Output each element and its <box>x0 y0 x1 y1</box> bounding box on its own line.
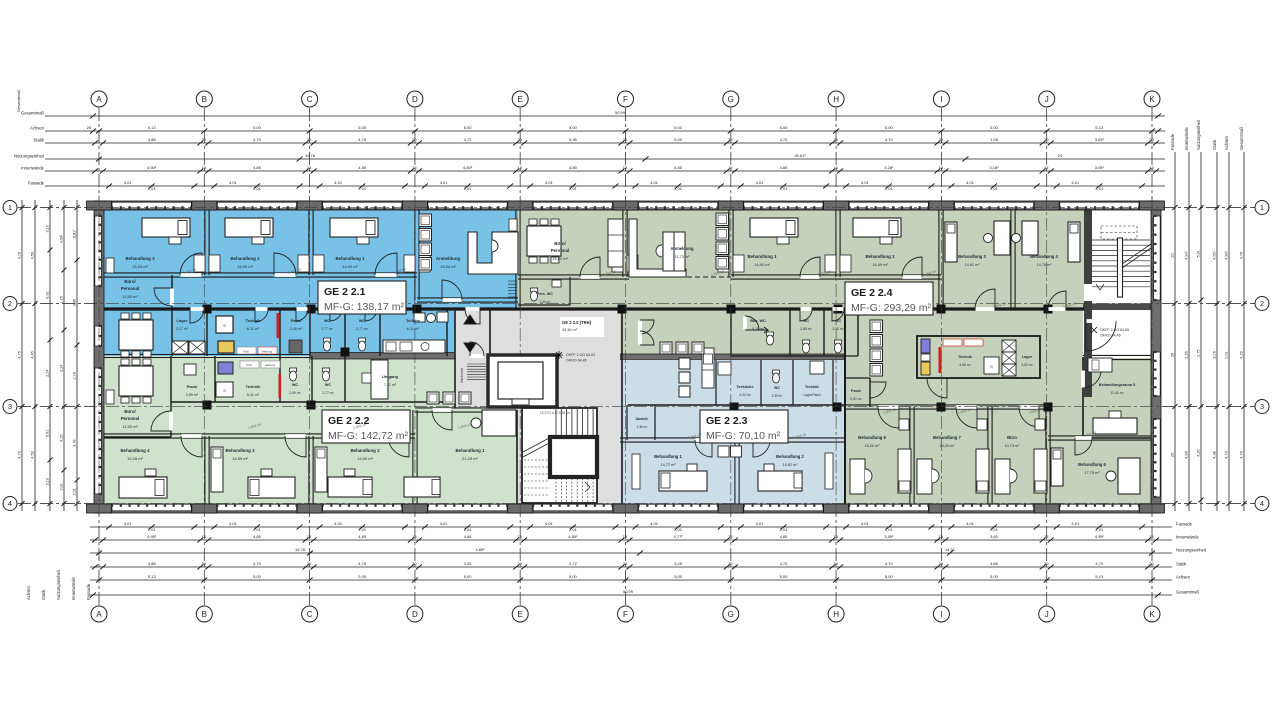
svg-text:15,28 m²: 15,28 m² <box>127 456 143 461</box>
svg-text:Anmeldung: Anmeldung <box>670 246 693 251</box>
svg-text:Behandlung 2: Behandlung 2 <box>230 256 260 261</box>
svg-text:Lager/Pausi: Lager/Pausi <box>803 393 820 397</box>
svg-text:14,82 m²: 14,82 m² <box>783 463 799 467</box>
svg-text:50,99: 50,99 <box>623 589 634 594</box>
svg-text:2,89 m²: 2,89 m² <box>186 393 199 397</box>
svg-text:2,24: 2,24 <box>60 365 64 372</box>
svg-text:20: 20 <box>1171 253 1175 257</box>
svg-text:2,01: 2,01 <box>1225 351 1229 358</box>
svg-text:3,59²: 3,59² <box>884 534 894 539</box>
svg-text:C: C <box>307 610 313 619</box>
svg-text:WC: WC <box>292 383 299 387</box>
svg-text:2,01: 2,01 <box>780 527 789 532</box>
svg-text:WC: WC <box>359 319 366 323</box>
svg-text:2,01: 2,01 <box>60 483 64 490</box>
svg-text:Garderobe: Garderobe <box>460 368 464 383</box>
svg-text:Umgang: Umgang <box>382 374 399 379</box>
svg-text:B: B <box>202 95 207 104</box>
svg-text:Gesamtmaß: Gesamtmaß <box>1239 127 1244 150</box>
svg-text:4: 4 <box>8 499 12 508</box>
svg-text:4,85: 4,85 <box>358 534 367 539</box>
svg-text:2,75: 2,75 <box>1197 350 1201 357</box>
svg-text:2,01: 2,01 <box>148 527 157 532</box>
svg-text:4,01: 4,01 <box>861 521 870 526</box>
svg-text:H: H <box>833 610 839 619</box>
svg-text:Gesamtmaß: Gesamtmaß <box>16 89 21 112</box>
svg-text:2,01: 2,01 <box>885 527 894 532</box>
svg-text:5,13: 5,13 <box>148 574 157 579</box>
svg-text:5,00: 5,00 <box>885 125 894 130</box>
svg-text:Technik/: Technik/ <box>805 385 819 389</box>
svg-text:4,68 m²: 4,68 m² <box>959 363 971 367</box>
svg-text:4,90²: 4,90² <box>147 165 157 170</box>
svg-text:4,01: 4,01 <box>229 180 238 185</box>
svg-text:5,00: 5,00 <box>253 125 262 130</box>
svg-text:OKFF 2.OG 64,65: OKFF 2.OG 64,65 <box>1100 328 1129 332</box>
svg-text:14,99 m²: 14,99 m² <box>872 262 888 267</box>
svg-text:4,95²: 4,95² <box>147 534 157 539</box>
svg-text:Büro/: Büro/ <box>124 409 136 414</box>
svg-text:GE 2 2.0 (TRH): GE 2 2.0 (TRH) <box>562 320 592 325</box>
svg-text:4,89²: 4,89² <box>475 547 485 552</box>
svg-text:18 STG a 17,5/28 cm: 18 STG a 17,5/28 cm <box>540 411 571 415</box>
svg-text:Technik: Technik <box>246 318 262 323</box>
svg-text:3: 3 <box>8 402 12 411</box>
svg-text:K: K <box>1149 610 1155 619</box>
svg-text:2,01: 2,01 <box>253 527 262 532</box>
svg-text:Fassade: Fassade <box>86 583 91 600</box>
svg-text:4,01: 4,01 <box>124 180 133 185</box>
svg-text:4,94¹: 4,94¹ <box>1185 250 1189 259</box>
svg-text:G: G <box>728 610 734 619</box>
svg-text:Nutzungseinheit: Nutzungseinheit <box>56 569 61 600</box>
svg-text:S: S <box>223 323 226 328</box>
svg-text:WC: WC <box>835 319 842 323</box>
svg-text:5,00: 5,00 <box>674 574 683 579</box>
svg-text:Behandlung 3: Behandlung 3 <box>958 254 986 259</box>
svg-text:Heizung: Heizung <box>262 350 273 354</box>
svg-text:4,75: 4,75 <box>18 351 22 358</box>
svg-text:I: I <box>940 610 942 619</box>
svg-text:WC: WC <box>803 319 810 323</box>
svg-text:Kühl: Kühl <box>243 350 249 354</box>
svg-text:14,72 m²: 14,72 m² <box>661 463 677 467</box>
svg-text:33,46 m²: 33,46 m² <box>562 328 578 332</box>
svg-text:15,28 m²: 15,28 m² <box>132 264 148 269</box>
svg-text:14,90 m²: 14,90 m² <box>342 264 358 269</box>
svg-text:4,70: 4,70 <box>358 561 367 566</box>
svg-text:14,90 m²: 14,90 m² <box>754 262 770 267</box>
svg-text:6,31 m²: 6,31 m² <box>247 327 260 331</box>
svg-text:4,70: 4,70 <box>780 561 789 566</box>
svg-text:3,05²: 3,05² <box>1095 165 1105 170</box>
svg-text:4,01: 4,01 <box>334 521 343 526</box>
svg-text:5,13: 5,13 <box>1095 574 1104 579</box>
svg-text:2,01: 2,01 <box>780 186 789 191</box>
svg-text:26: 26 <box>1171 353 1175 357</box>
svg-text:19,78: 19,78 <box>295 547 306 552</box>
svg-text:4,02 m²: 4,02 m² <box>739 393 751 397</box>
svg-text:Behandlung 4: Behandlung 4 <box>1030 254 1058 259</box>
svg-text:2,01: 2,01 <box>148 186 157 191</box>
svg-text:14,91: 14,91 <box>945 547 956 552</box>
svg-text:D: D <box>412 95 418 104</box>
svg-text:4,85: 4,85 <box>358 165 367 170</box>
svg-text:Statik: Statik <box>41 589 46 600</box>
svg-text:2,85 m²: 2,85 m² <box>800 327 812 331</box>
svg-text:2,01: 2,01 <box>674 527 683 532</box>
svg-text:3: 3 <box>1260 402 1264 411</box>
svg-text:B: B <box>202 610 207 619</box>
svg-text:4,01: 4,01 <box>966 180 975 185</box>
svg-text:4,70: 4,70 <box>885 137 894 142</box>
svg-text:Behandlung 4: Behandlung 4 <box>120 448 150 453</box>
svg-text:2,51 m²: 2,51 m² <box>850 397 862 401</box>
svg-text:Behandlung 6: Behandlung 6 <box>1078 462 1106 467</box>
svg-text:Fassade: Fassade <box>1176 522 1193 527</box>
svg-text:4,85: 4,85 <box>253 534 262 539</box>
svg-text:4,70: 4,70 <box>253 561 262 566</box>
svg-text:2,01: 2,01 <box>464 186 473 191</box>
svg-text:Büro/: Büro/ <box>124 279 136 284</box>
svg-text:4,29: 4,29 <box>1240 351 1244 358</box>
svg-text:14,76 m²: 14,76 m² <box>1037 263 1053 267</box>
svg-text:3,17 m²: 3,17 m² <box>176 327 189 331</box>
svg-text:5,00: 5,00 <box>358 125 367 130</box>
svg-text:4,85: 4,85 <box>780 534 789 539</box>
svg-text:4,85: 4,85 <box>674 165 683 170</box>
svg-text:5,13: 5,13 <box>1095 125 1104 130</box>
svg-text:J: J <box>1045 610 1049 619</box>
svg-text:Behandlung 1: Behandlung 1 <box>335 256 365 261</box>
svg-text:5,00: 5,00 <box>569 574 578 579</box>
svg-text:4,01: 4,01 <box>756 180 765 185</box>
svg-text:4,70: 4,70 <box>885 561 894 566</box>
svg-text:4,59: 4,59 <box>31 451 35 458</box>
svg-text:3,25: 3,25 <box>674 561 683 566</box>
svg-text:6,91: 6,91 <box>46 430 50 437</box>
svg-text:4,01: 4,01 <box>334 180 343 185</box>
svg-text:5,00: 5,00 <box>569 125 578 130</box>
svg-text:2,30 m²: 2,30 m² <box>540 300 551 304</box>
svg-text:3,66: 3,66 <box>73 299 77 306</box>
svg-text:5,00: 5,00 <box>885 574 894 579</box>
svg-text:4,15: 4,15 <box>60 435 64 442</box>
svg-text:4,95: 4,95 <box>1185 451 1189 458</box>
svg-text:5,61¹: 5,61¹ <box>73 229 77 238</box>
svg-text:A: A <box>96 610 102 619</box>
svg-text:1,36 m²: 1,36 m² <box>637 425 648 429</box>
svg-text:4,26: 4,26 <box>1197 450 1201 457</box>
svg-text:Behandlung 1: Behandlung 1 <box>747 254 777 259</box>
svg-text:3,10 m²: 3,10 m² <box>832 327 844 331</box>
svg-text:4,80²: 4,80² <box>463 165 473 170</box>
svg-text:Behandlung 8: Behandlung 8 <box>858 435 886 440</box>
svg-text:4,88: 4,88 <box>990 561 999 566</box>
svg-text:2,76: 2,76 <box>73 372 77 379</box>
svg-text:4,79: 4,79 <box>1240 451 1244 458</box>
svg-text:5,00: 5,00 <box>674 125 683 130</box>
svg-text:14,99 m²: 14,99 m² <box>357 456 373 461</box>
svg-text:GE 2 2.1: GE 2 2.1 <box>324 286 366 298</box>
svg-text:I: I <box>940 95 942 104</box>
svg-text:WC: WC <box>325 383 332 387</box>
svg-text:24: 24 <box>1058 153 1063 158</box>
svg-text:26,61²: 26,61² <box>794 153 806 158</box>
svg-text:4,70: 4,70 <box>358 137 367 142</box>
svg-text:4,01: 4,01 <box>650 180 659 185</box>
svg-text:Nutzungseinheit: Nutzungseinheit <box>14 154 45 159</box>
svg-text:Pausi: Pausi <box>187 384 198 389</box>
svg-text:5,15 m²: 5,15 m² <box>752 327 764 331</box>
svg-text:4,95²: 4,95² <box>1095 534 1105 539</box>
svg-text:5,00: 5,00 <box>253 574 262 579</box>
svg-text:17,75 m²: 17,75 m² <box>1085 471 1101 475</box>
svg-text:Kühl: Kühl <box>246 363 252 367</box>
svg-text:Behandlung 7: Behandlung 7 <box>933 435 961 440</box>
svg-text:6,31 m²: 6,31 m² <box>407 327 420 331</box>
svg-text:4,59: 4,59 <box>31 252 35 259</box>
svg-text:11,55 m²: 11,55 m² <box>122 424 138 429</box>
svg-text:4,70: 4,70 <box>780 137 789 142</box>
svg-text:11,41 m²: 11,41 m² <box>1110 391 1124 395</box>
svg-text:F: F <box>623 95 628 104</box>
svg-text:2,72: 2,72 <box>569 561 578 566</box>
svg-text:Personal: Personal <box>121 286 140 291</box>
svg-text:MF-G: 293,29 m²: MF-G: 293,29 m² <box>851 302 931 314</box>
svg-text:5,00: 5,00 <box>674 137 683 142</box>
svg-text:2: 2 <box>8 299 12 308</box>
svg-text:3,10: 3,10 <box>46 225 50 232</box>
svg-text:4,88: 4,88 <box>148 561 157 566</box>
svg-text:4,01: 4,01 <box>966 521 975 526</box>
svg-text:5,13: 5,13 <box>148 125 157 130</box>
svg-text:19,78: 19,78 <box>305 153 316 158</box>
svg-text:4,79: 4,79 <box>18 451 22 458</box>
svg-text:Fassade: Fassade <box>1170 133 1175 150</box>
svg-text:Lager: Lager <box>1022 355 1033 359</box>
svg-text:2,77 m²: 2,77 m² <box>322 391 334 395</box>
svg-text:WC: WC <box>324 319 331 323</box>
svg-text:2,01: 2,01 <box>464 527 473 532</box>
svg-text:Innenwände: Innenwände <box>21 166 44 171</box>
svg-text:4,85²: 4,85² <box>568 534 578 539</box>
svg-text:3,18²: 3,18² <box>989 165 999 170</box>
svg-text:Behandlung 2: Behandlung 2 <box>865 254 895 259</box>
svg-text:Behandlung 2: Behandlung 2 <box>776 454 804 459</box>
svg-text:Personal: Personal <box>121 416 140 421</box>
svg-text:Gesamtmaß: Gesamtmaß <box>21 111 44 116</box>
svg-text:Statik: Statik <box>34 138 45 143</box>
svg-text:OKRO 64,46: OKRO 64,46 <box>566 359 587 363</box>
svg-text:1,58: 1,58 <box>990 137 999 142</box>
svg-text:C: C <box>307 95 313 104</box>
svg-text:50,99: 50,99 <box>615 110 626 115</box>
svg-text:Achsen: Achsen <box>1176 575 1191 580</box>
svg-text:2,26: 2,26 <box>1185 351 1189 358</box>
svg-text:4,01: 4,01 <box>440 180 449 185</box>
svg-text:Innenwände: Innenwände <box>1176 535 1199 540</box>
svg-text:Pers. WC: Pers. WC <box>537 292 553 296</box>
svg-text:4,79: 4,79 <box>18 252 22 259</box>
svg-text:Nutzungseinheit: Nutzungseinheit <box>1196 119 1201 150</box>
svg-text:2,01: 2,01 <box>990 186 999 191</box>
svg-text:5,00: 5,00 <box>464 574 473 579</box>
svg-text:MF-G: 142,72 m²: MF-G: 142,72 m² <box>328 430 408 442</box>
svg-text:Toilette: Toilette <box>406 318 421 323</box>
svg-text:5,00: 5,00 <box>464 125 473 130</box>
svg-text:Achsen: Achsen <box>26 585 31 600</box>
svg-text:5,00: 5,00 <box>990 125 999 130</box>
svg-text:GE 2 2.4: GE 2 2.4 <box>851 287 893 299</box>
svg-text:4,01: 4,01 <box>440 521 449 526</box>
svg-text:Innenwände: Innenwände <box>71 577 76 600</box>
svg-text:2,69 m²: 2,69 m² <box>289 391 301 395</box>
svg-text:Anmeldung: Anmeldung <box>436 256 460 261</box>
svg-text:OKFF 2.OG 64,63: OKFF 2.OG 64,63 <box>566 353 595 357</box>
svg-text:Gesamtmaß: Gesamtmaß <box>1176 590 1199 595</box>
svg-text:4,68: 4,68 <box>464 534 473 539</box>
svg-text:2,01: 2,01 <box>358 527 367 532</box>
svg-text:26: 26 <box>87 125 92 130</box>
svg-text:4,01: 4,01 <box>756 521 765 526</box>
svg-text:4,01: 4,01 <box>545 180 554 185</box>
svg-text:2,01: 2,01 <box>253 186 262 191</box>
svg-text:5,41 m²: 5,41 m² <box>247 393 260 397</box>
svg-text:4,70: 4,70 <box>253 137 262 142</box>
svg-text:4,01: 4,01 <box>650 521 659 526</box>
svg-text:2,01: 2,01 <box>1095 527 1104 532</box>
svg-text:Technik: Technik <box>246 384 262 389</box>
svg-text:H: H <box>833 95 839 104</box>
svg-text:Nutzungseinheit: Nutzungseinheit <box>1176 548 1207 553</box>
svg-text:11,55 m²: 11,55 m² <box>122 294 138 299</box>
svg-text:4,79: 4,79 <box>1240 252 1244 259</box>
svg-text:15,54 m²: 15,54 m² <box>440 264 456 269</box>
svg-text:16,20 m²: 16,20 m² <box>865 444 881 448</box>
svg-text:2: 2 <box>1260 299 1264 308</box>
svg-text:2,01: 2,01 <box>990 527 999 532</box>
svg-text:5,00: 5,00 <box>780 574 789 579</box>
svg-text:4,59¹: 4,59¹ <box>1213 250 1217 259</box>
svg-text:2,01: 2,01 <box>358 186 367 191</box>
svg-text:4,01: 4,01 <box>545 521 554 526</box>
svg-text:Statik: Statik <box>1176 562 1187 567</box>
svg-text:3,05²: 3,05² <box>1095 137 1105 142</box>
svg-text:K: K <box>1149 95 1155 104</box>
svg-text:4: 4 <box>1260 499 1264 508</box>
svg-text:2,01: 2,01 <box>1095 186 1104 191</box>
svg-text:Achsen: Achsen <box>30 126 45 131</box>
svg-text:E: E <box>518 95 523 104</box>
svg-text:WC: WC <box>774 386 780 390</box>
svg-text:4,99¹: 4,99¹ <box>1225 250 1229 259</box>
svg-text:Büro: Büro <box>1007 435 1017 440</box>
svg-text:F: F <box>623 610 628 619</box>
svg-text:2,77 m²: 2,77 m² <box>321 327 333 331</box>
svg-text:Pausi: Pausi <box>851 389 861 393</box>
svg-text:Achsen: Achsen <box>1224 135 1229 150</box>
svg-text:G: G <box>728 95 734 104</box>
svg-text:Fassade: Fassade <box>28 181 45 186</box>
svg-text:3,60: 3,60 <box>990 534 999 539</box>
svg-text:MF-G: 138,17 m²: MF-G: 138,17 m² <box>324 301 404 313</box>
svg-text:Pausi: Pausi <box>291 318 302 323</box>
svg-text:2,01: 2,01 <box>885 186 894 191</box>
svg-text:Behandlung 3: Behandlung 3 <box>225 448 255 453</box>
svg-text:14,99 m²: 14,99 m² <box>232 456 248 461</box>
svg-text:4,85: 4,85 <box>569 165 578 170</box>
svg-text:5,91: 5,91 <box>1197 250 1201 257</box>
svg-text:2,24: 2,24 <box>46 370 50 377</box>
svg-text:2,01: 2,01 <box>73 488 77 495</box>
svg-text:3,10: 3,10 <box>46 478 50 485</box>
svg-text:4,45: 4,45 <box>31 351 35 358</box>
svg-text:21,29 m²: 21,29 m² <box>462 456 478 461</box>
svg-text:4,70: 4,70 <box>1095 561 1104 566</box>
svg-text:4,85: 4,85 <box>780 165 789 170</box>
svg-text:4,72: 4,72 <box>464 137 473 142</box>
svg-text:4,01: 4,01 <box>124 521 133 526</box>
svg-text:Behandlung 3: Behandlung 3 <box>125 256 155 261</box>
svg-text:14,91 m²: 14,91 m² <box>965 263 981 267</box>
svg-text:Behandlung 2: Behandlung 2 <box>350 448 380 453</box>
svg-text:5,38: 5,38 <box>569 137 578 142</box>
svg-text:Personal: Personal <box>551 248 570 253</box>
svg-text:14,99 m²: 14,99 m² <box>237 264 253 269</box>
svg-text:4,88: 4,88 <box>148 137 157 142</box>
svg-text:1: 1 <box>8 203 12 212</box>
svg-text:MF-G: 70,10 m²: MF-G: 70,10 m² <box>706 430 781 442</box>
svg-text:2,01: 2,01 <box>674 186 683 191</box>
svg-text:4,79: 4,79 <box>1225 451 1229 458</box>
svg-text:D: D <box>412 610 418 619</box>
svg-text:3,16: 3,16 <box>1213 351 1217 358</box>
svg-text:4,01: 4,01 <box>861 180 870 185</box>
svg-text:5,00: 5,00 <box>990 574 999 579</box>
svg-text:Technik: Technik <box>958 355 973 359</box>
svg-text:4,01: 4,01 <box>1071 180 1080 185</box>
svg-text:2,01: 2,01 <box>569 186 578 191</box>
svg-text:2,01: 2,01 <box>569 527 578 532</box>
svg-text:16,43 m²: 16,43 m² <box>940 444 956 448</box>
svg-text:5,00: 5,00 <box>780 125 789 130</box>
svg-text:5,00: 5,00 <box>358 574 367 579</box>
svg-text:10,73 m²: 10,73 m² <box>1005 444 1021 448</box>
svg-text:4,85: 4,85 <box>253 165 262 170</box>
svg-text:A: A <box>96 95 102 104</box>
svg-text:20: 20 <box>1171 453 1175 457</box>
svg-text:Behandlungsraum 5: Behandlungsraum 5 <box>1099 383 1136 387</box>
svg-text:2,77 m²: 2,77 m² <box>356 327 368 331</box>
svg-text:1: 1 <box>1260 203 1264 212</box>
svg-text:4,38: 4,38 <box>1213 451 1217 458</box>
svg-text:3,78: 3,78 <box>73 440 77 447</box>
svg-text:2,39 m²: 2,39 m² <box>772 394 783 398</box>
svg-text:Teeküche: Teeküche <box>736 385 753 389</box>
svg-text:2,46 m²: 2,46 m² <box>290 327 303 331</box>
svg-text:4,01: 4,01 <box>229 521 238 526</box>
svg-text:7,41 m²: 7,41 m² <box>384 383 397 387</box>
svg-text:4,59¹: 4,59¹ <box>60 234 64 243</box>
svg-text:Innenwände: Innenwände <box>1184 127 1189 150</box>
svg-text:Abstell.: Abstell. <box>636 417 649 421</box>
svg-text:11,73 m²: 11,73 m² <box>675 255 690 259</box>
svg-text:Beh. WC: Beh. WC <box>750 319 766 323</box>
svg-text:Lager: Lager <box>177 318 188 323</box>
svg-text:3,35: 3,35 <box>464 561 473 566</box>
svg-text:J: J <box>1045 95 1049 104</box>
